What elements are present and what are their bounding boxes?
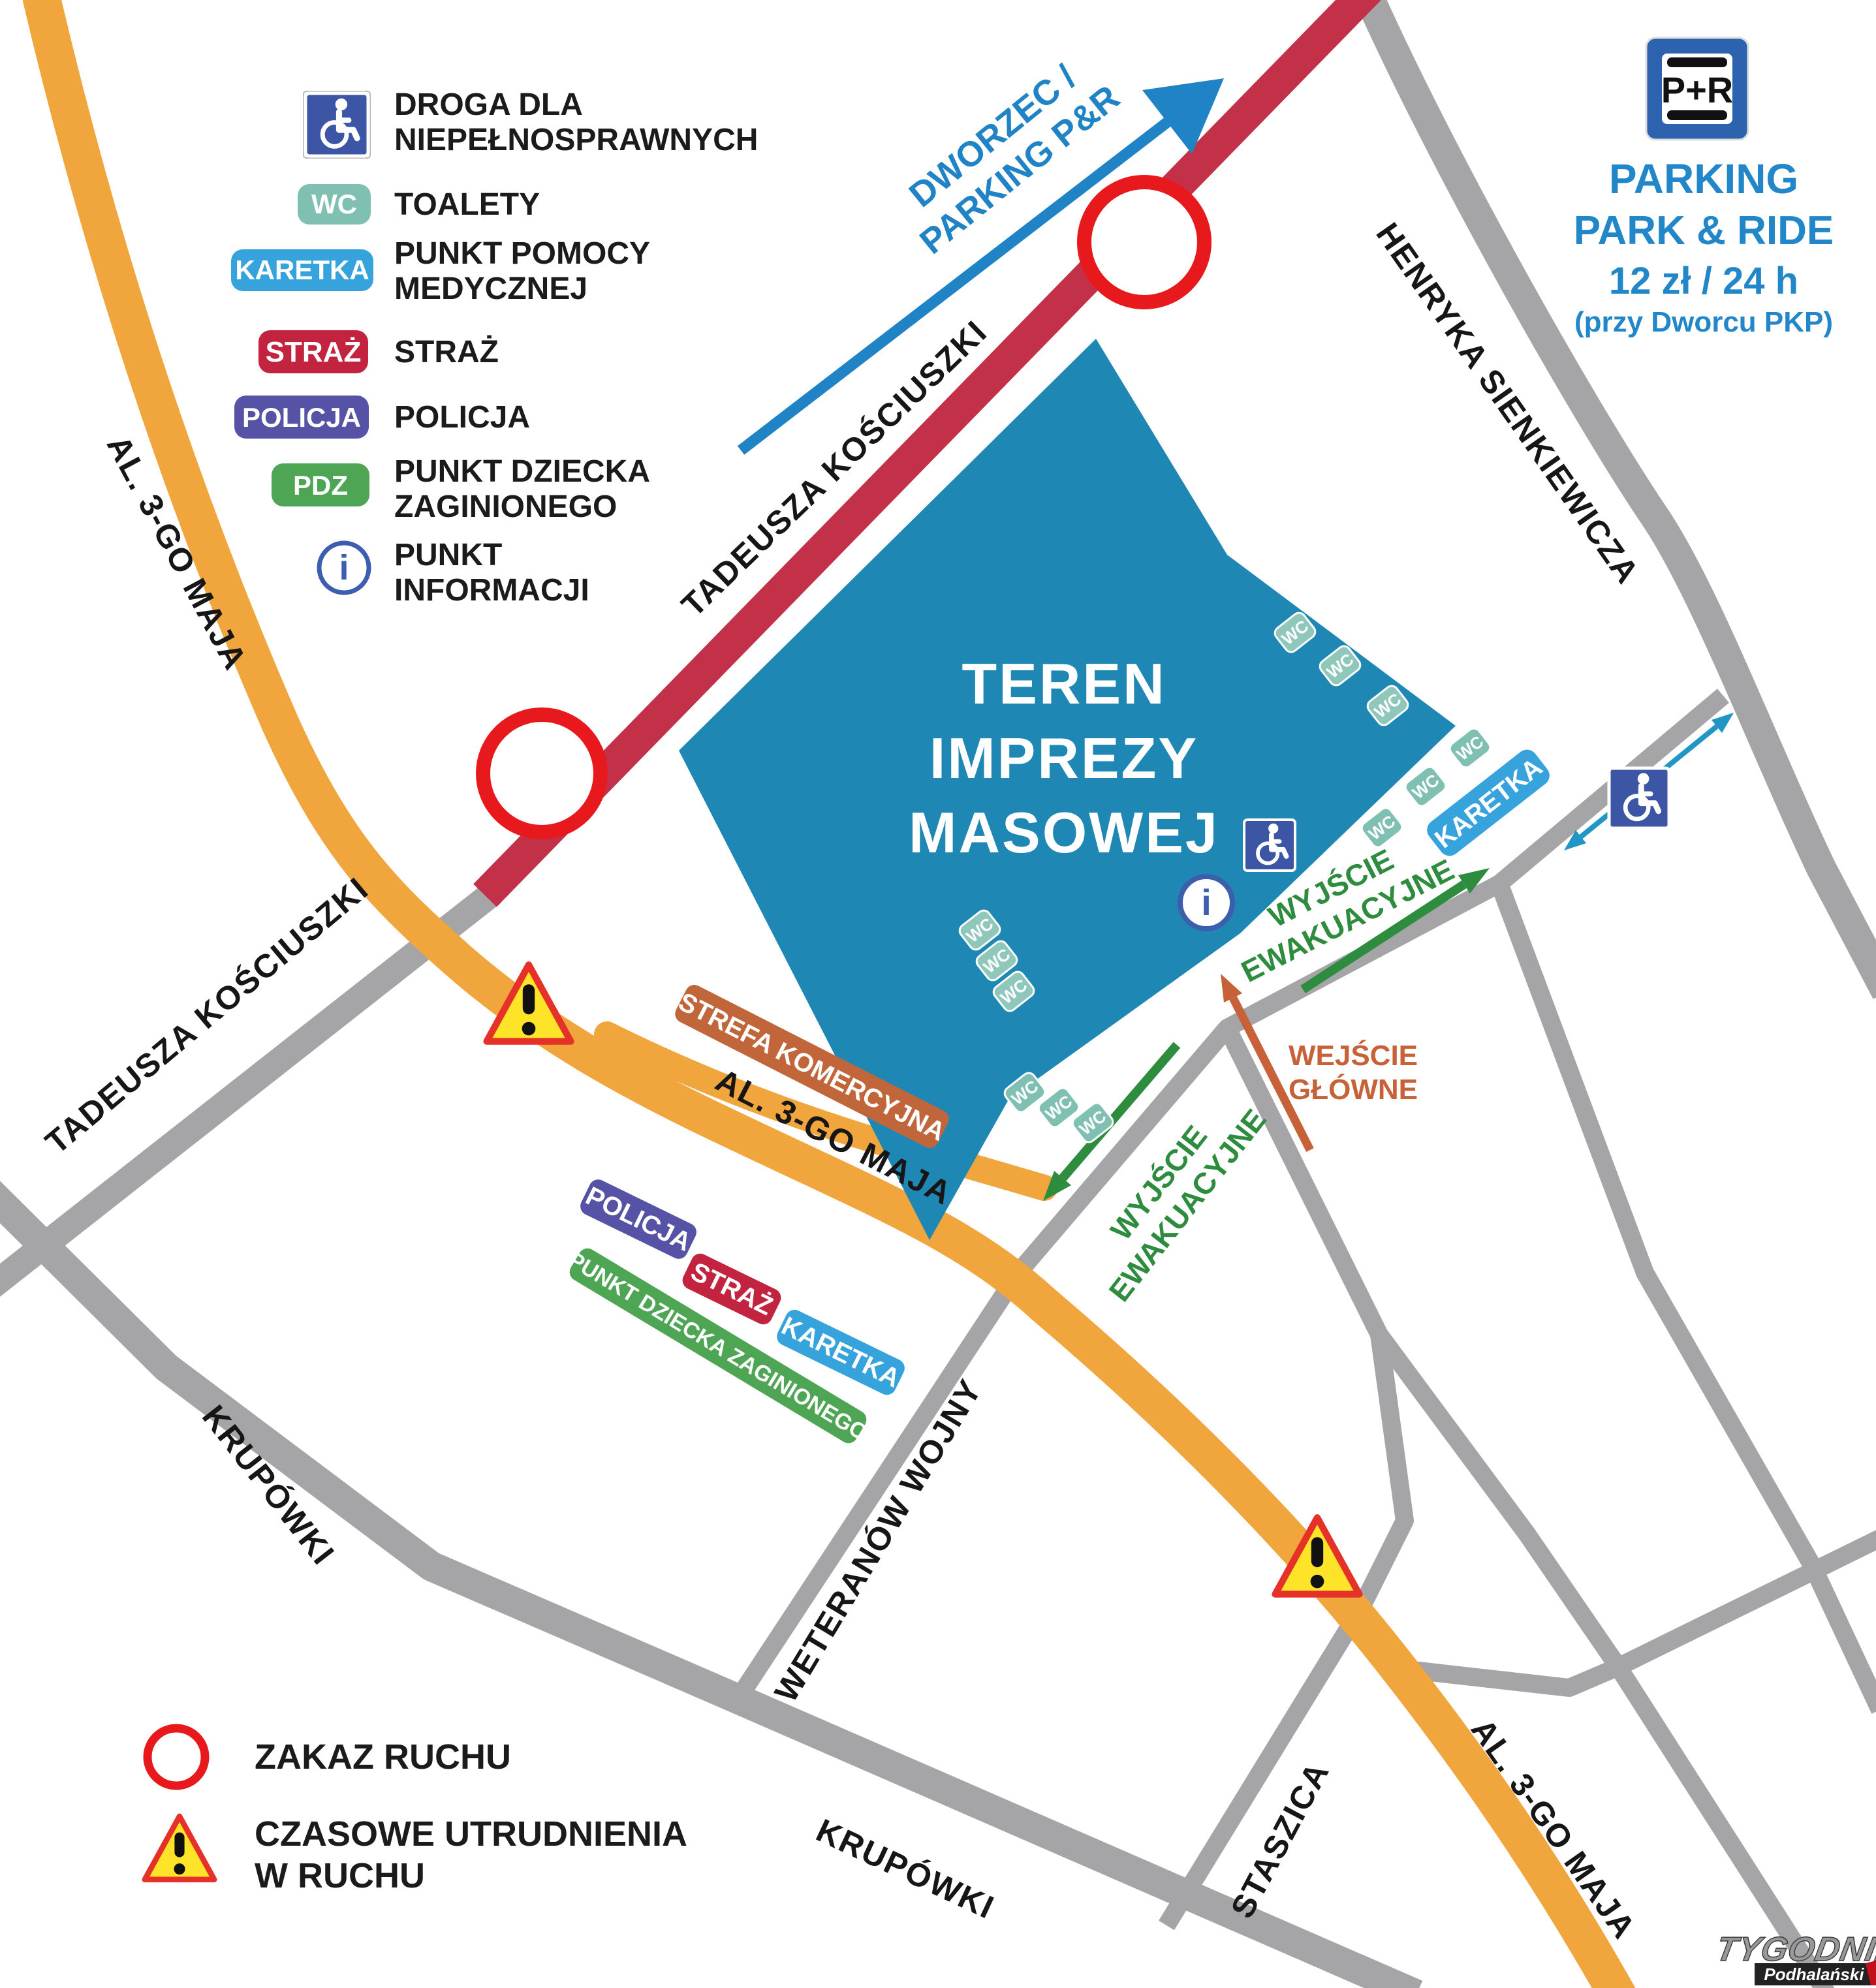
- svg-text:KARETKA: KARETKA: [1430, 753, 1548, 854]
- pdz-legend-badge: PDZ: [272, 463, 369, 506]
- info-icon: i: [319, 543, 369, 593]
- entrance-arrow-head: [1221, 974, 1242, 1002]
- zakaz-ruchu-label: ZAKAZ RUCHU: [255, 1737, 511, 1777]
- info-icon: i: [1180, 877, 1232, 929]
- street-label-weteranow: WETERANÓW WOJNY: [768, 1373, 990, 1708]
- wc-badge: WC: [1403, 764, 1448, 809]
- warning-triangle-icon: [145, 1816, 214, 1880]
- parking-subtitle: PARK & RIDE: [1574, 208, 1834, 253]
- parking-info: P+R PARKING PARK & RIDE 12 zł / 24 h (pr…: [1574, 38, 1834, 338]
- svg-text:WC: WC: [311, 189, 357, 219]
- road-kosciuszki-gray: [0, 893, 493, 1296]
- watermark-subtitle: Podhalański: [1764, 1965, 1864, 1984]
- svg-text:i: i: [339, 548, 349, 587]
- karetka-legend-badge: KARETKA: [231, 249, 373, 291]
- legend-label: PUNKT DZIECKA: [394, 454, 650, 489]
- parking-price: 12 zł / 24 h: [1609, 260, 1798, 302]
- legend-label: PUNKT POMOCY: [394, 236, 650, 271]
- entrance-label-line1: WEJŚCIE: [1289, 1039, 1418, 1072]
- svg-text:STRAŻ: STRAŻ: [266, 336, 362, 368]
- wheelchair-icon: [1244, 820, 1295, 871]
- svg-text:P+R: P+R: [1661, 69, 1734, 110]
- watermark-title: TYGODNIK: [1713, 1931, 1876, 1968]
- event-title-line1: TEREN: [961, 651, 1166, 716]
- utrudnienia-label-line1: CZASOWE UTRUDNIENIA: [255, 1814, 687, 1854]
- wc-legend-badge: WC: [298, 184, 371, 225]
- event-title-line3: MASOWEJ: [909, 800, 1219, 865]
- service-badges-row: POLICJA STRAŻ KARETKA PUNKT DZIECKA ZAGI…: [561, 1176, 908, 1450]
- legend-label: TOALETY: [394, 187, 540, 222]
- disabled-access-route: [1564, 713, 1734, 850]
- wc-badge: WC: [1447, 726, 1493, 770]
- wheelchair-sign-icon: [304, 91, 370, 158]
- svg-text:i: i: [1201, 882, 1212, 923]
- street-label-krupowki-south: KRUPÓWKI: [811, 1812, 1000, 1926]
- svg-text:KARETKA: KARETKA: [235, 255, 369, 285]
- event-title-line2: IMPREZY: [930, 726, 1198, 790]
- no-entry-circle-north: [1084, 182, 1204, 302]
- no-entry-circle-south: [483, 715, 601, 832]
- wheelchair-icon: [1609, 768, 1669, 828]
- legend-label: POLICJA: [394, 400, 530, 435]
- svg-text:POLICJA: POLICJA: [242, 402, 361, 433]
- legend-label: NIEPEŁNOSPRAWNYCH: [394, 123, 758, 157]
- policja-legend-badge: POLICJA: [234, 396, 369, 439]
- legend: DROGA DLA NIEPEŁNOSPRAWNYCH WC TOALETY K…: [231, 87, 758, 608]
- legend-label: STRAŻ: [394, 335, 499, 369]
- utrudnienia-label-line2: W RUCHU: [255, 1856, 425, 1895]
- no-entry-circle-icon: [148, 1728, 205, 1786]
- svg-text:STRAŻ: STRAŻ: [686, 1257, 777, 1321]
- traffic-legend: ZAKAZ RUCHU CZASOWE UTRUDNIENIA W RUCHU: [145, 1728, 687, 1895]
- park-and-ride-sign-icon: P+R: [1646, 38, 1748, 140]
- legend-label: ZAGINIONEGO: [394, 489, 617, 524]
- svg-text:PDZ: PDZ: [293, 470, 348, 501]
- legend-label: MEDYCZNEJ: [394, 272, 587, 306]
- legend-label: DROGA DLA: [394, 87, 583, 122]
- straz-legend-badge: STRAŻ: [258, 330, 368, 373]
- street-label-staszica: STASZICA: [1224, 1756, 1337, 1924]
- event-traffic-map: TEREN IMPREZY MASOWEJ TADEUSZA KOŚCIUSZK…: [0, 0, 1876, 1988]
- legend-label: INFORMACJI: [394, 573, 589, 608]
- parking-location: (przy Dworcu PKP): [1574, 306, 1833, 338]
- parking-title: PARKING: [1609, 155, 1798, 202]
- evacuation-exit-southwest: WYJŚCIE EWAKUACYJNE: [1043, 1045, 1273, 1308]
- watermark-logo: TYGODNIK Podhalański: [1713, 1931, 1876, 1985]
- policja-badge: POLICJA: [577, 1176, 699, 1262]
- entrance-label-line2: GŁÓWNE: [1289, 1073, 1418, 1106]
- legend-label: PUNKT: [394, 538, 502, 572]
